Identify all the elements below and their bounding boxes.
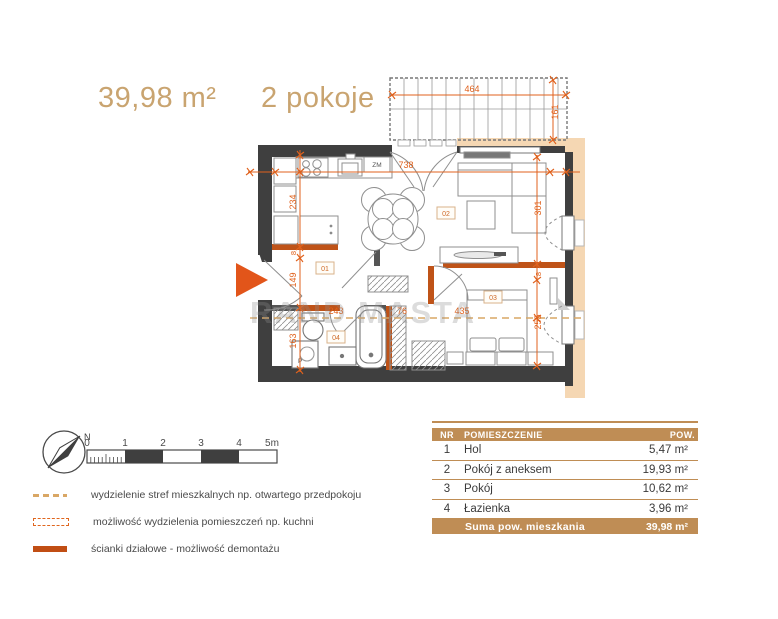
radiator-icon — [550, 278, 557, 304]
coffee-table — [467, 201, 495, 229]
cell-name: Pokój — [462, 483, 604, 495]
cell-nr: 3 — [432, 483, 462, 495]
table-header-row: NR POMIESZCZENIE POW. — [432, 428, 698, 441]
scale-tick-1: 1 — [122, 438, 128, 449]
col-header-nr: NR — [432, 430, 462, 440]
dim-bathroom-height: 163 — [288, 333, 298, 348]
dim-interior-width: 738 — [398, 160, 413, 170]
cell-pow: 10,62 m² — [604, 483, 698, 495]
table-row: 1 Hol 5,47 m² — [432, 441, 698, 461]
stove-icon — [298, 158, 328, 177]
zone-dashed-line-icon — [33, 494, 67, 497]
cell-nr: 4 — [432, 503, 462, 515]
cell-nr: 2 — [432, 464, 462, 476]
cell-name: Łazienka — [462, 503, 604, 515]
legend-label: ścianki działowe - możliwość demontażu — [91, 543, 280, 555]
sofa — [458, 152, 546, 233]
scale-tick-5: 5m — [265, 438, 279, 449]
legend-item-partitions: ścianki działowe - możliwość demontażu — [33, 541, 423, 557]
cell-pow: 19,93 m² — [604, 464, 698, 476]
total-value: 39,98 m² — [604, 521, 698, 533]
dim-hall-height: 149 — [288, 272, 298, 287]
cell-pow: 3,96 m² — [604, 503, 698, 515]
dim-kitchen-side: 234 — [288, 194, 298, 209]
legend-item-zones: wydzielenie stref mieszkalnych np. otwar… — [33, 487, 423, 503]
table-row: 4 Łazienka 3,96 m² — [432, 500, 698, 520]
room-label-hall: 01 — [321, 266, 329, 273]
scale-bar: 0 1 2 3 4 5m — [84, 438, 279, 463]
dim-balcony-width: 464 — [464, 84, 479, 94]
washbasin-icon — [329, 347, 356, 365]
dim-wall-b: 8 — [534, 272, 543, 276]
kitchen-dashed-box-icon — [33, 518, 69, 526]
tv-cabinet — [440, 247, 518, 263]
dim-balcony-depth: 161 — [550, 104, 560, 119]
col-header-name: POMIESZCZENIE — [462, 430, 611, 440]
legend-label: możliwość wydzielenia pomieszczeń np. ku… — [93, 516, 314, 528]
solid-partition-line-icon — [33, 546, 67, 552]
cell-nr: 1 — [432, 444, 462, 456]
table-top-rule — [432, 421, 698, 423]
dim-bedroom-side: 255 — [533, 314, 543, 329]
dim-living-side: 301 — [533, 200, 543, 215]
dining-table — [362, 188, 425, 251]
entrance-arrow-icon — [236, 263, 268, 297]
room-label-living: 02 — [442, 211, 450, 218]
legend-label: wydzielenie stref mieszkalnych np. otwar… — [91, 489, 361, 501]
table-row: 2 Pokój z aneksem 19,93 m² — [432, 461, 698, 481]
col-header-pow: POW. — [611, 430, 698, 440]
room-label-bathroom: 04 — [332, 335, 340, 342]
cell-name: Pokój z aneksem — [462, 464, 604, 476]
scale-tick-0: 0 — [84, 438, 90, 449]
scale-tick-2: 2 — [160, 438, 166, 449]
floorplan-page: 39,98 m² 2 pokoje — [0, 0, 778, 619]
legend-item-kitchen: możliwość wydzielenia pomieszczeń np. ku… — [33, 514, 423, 530]
scale-tick-3: 3 — [198, 438, 204, 449]
room-label-bedroom: 03 — [489, 295, 497, 302]
legend: wydzielenie stref mieszkalnych np. otwar… — [33, 487, 423, 568]
cell-pow: 5,47 m² — [604, 444, 698, 456]
table-footer-row: Suma pow. mieszkania 39,98 m² — [432, 519, 698, 534]
rooms-table: NR POMIESZCZENIE POW. 1 Hol 5,47 m² 2 Po… — [432, 421, 698, 534]
dishwasher-label: ZM — [372, 162, 381, 169]
table-row: 3 Pokój 10,62 m² — [432, 480, 698, 500]
cell-name: Hol — [462, 444, 604, 456]
total-label: Suma pow. mieszkania — [432, 521, 604, 533]
scale-tick-4: 4 — [236, 438, 242, 449]
watermark: RAND MASTA — [250, 295, 476, 330]
dim-wall-a: 8 — [289, 251, 298, 255]
